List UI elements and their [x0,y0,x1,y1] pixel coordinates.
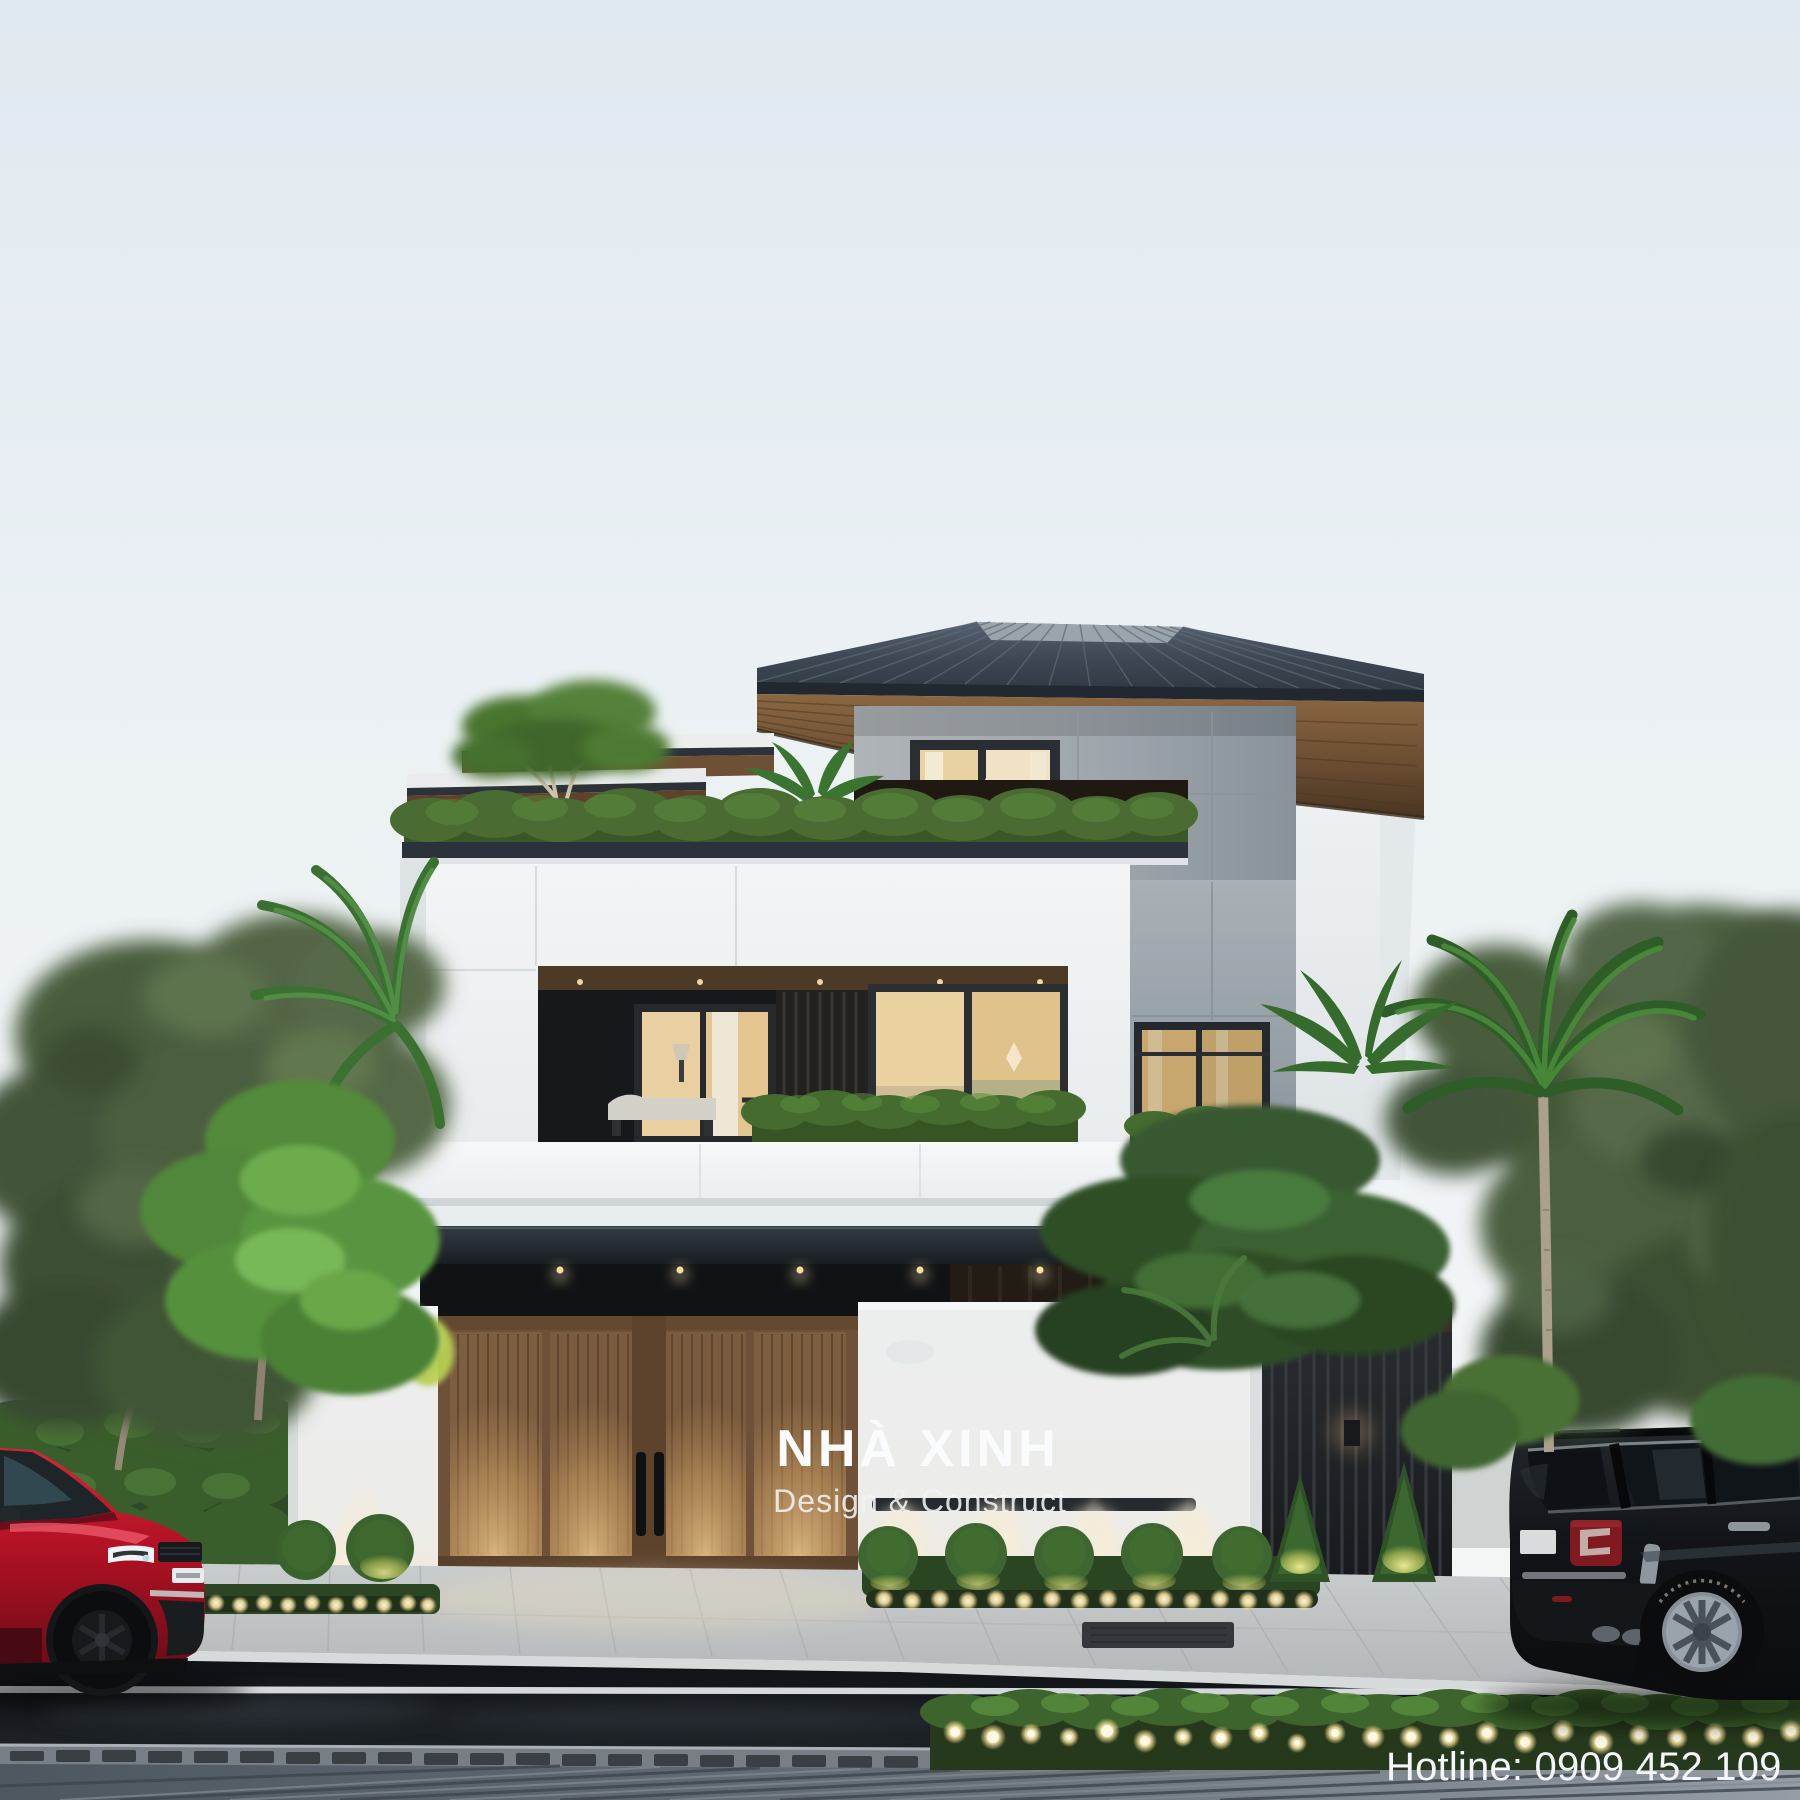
svg-text:Hotline: 0909 452 109: Hotline: 0909 452 109 [1386,1745,1782,1789]
svg-text:Design & Construct: Design & Construct [773,1483,1067,1519]
svg-text:NHÀ XINH: NHÀ XINH [776,1420,1059,1478]
